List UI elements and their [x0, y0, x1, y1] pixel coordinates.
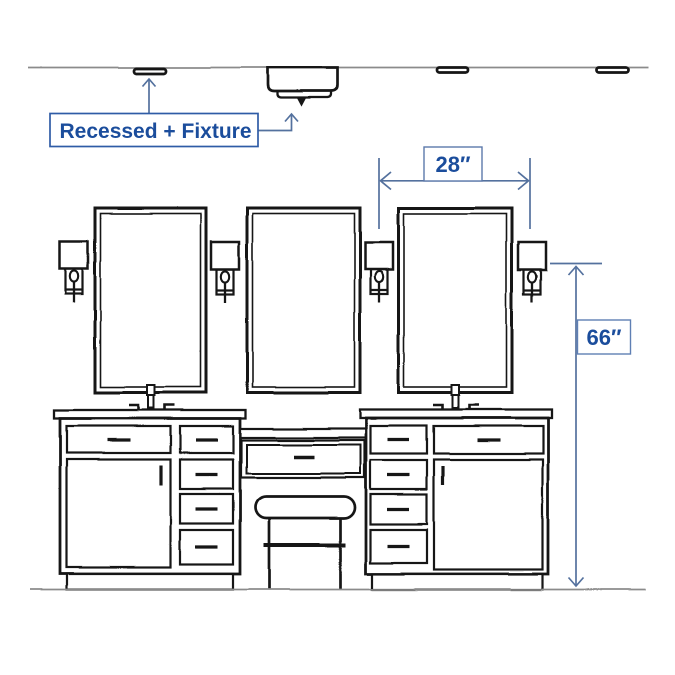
svg-text:66″: 66″ [586, 325, 621, 350]
svg-text:Recessed + Fixture: Recessed + Fixture [59, 120, 251, 143]
svg-text:28″: 28″ [435, 152, 470, 177]
